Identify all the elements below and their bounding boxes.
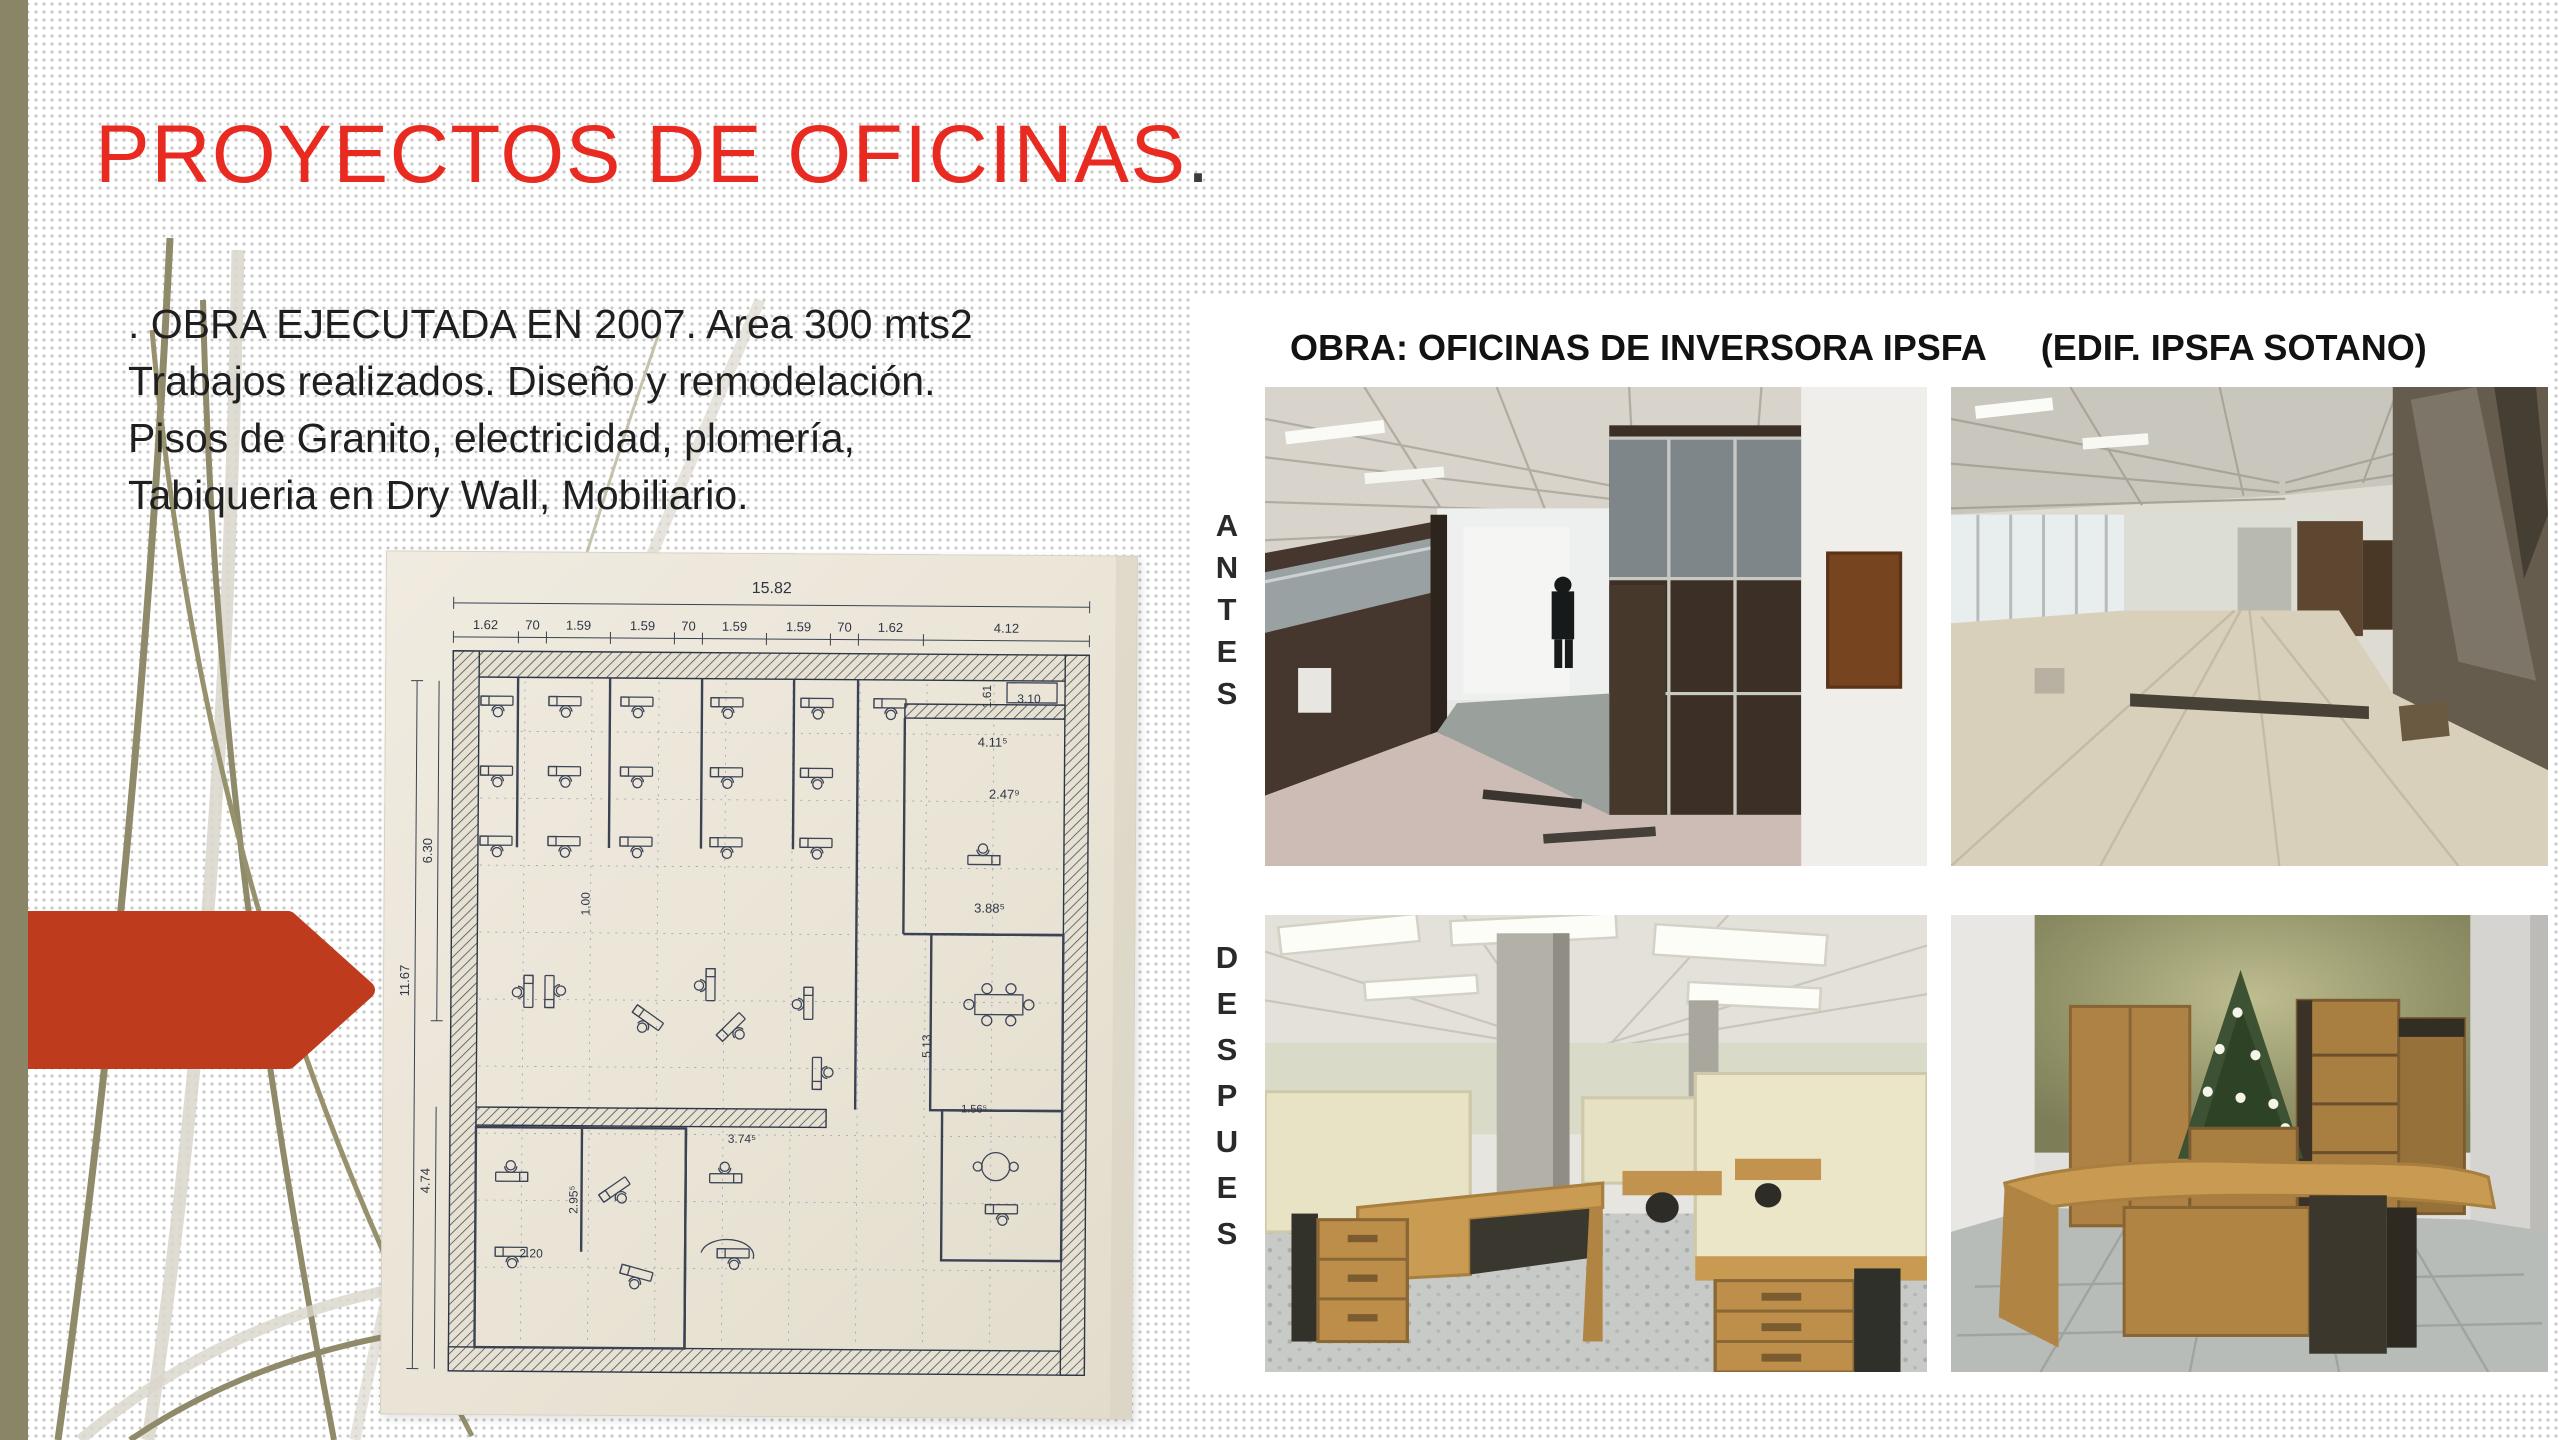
svg-text:4.74: 4.74 (418, 1168, 433, 1193)
project-photos-panel: OBRA: OFICINAS DE INVERSORA IPSFA(EDIF. … (1194, 297, 2550, 1393)
floor-plan-scan: 15.821.62701.591.59701.591.59701.624.126… (380, 550, 1138, 1419)
svg-text:1.59: 1.59 (786, 619, 811, 634)
left-accent-bar (0, 0, 28, 1440)
title-text: PROYECTOS DE OFICINAS (95, 109, 1187, 200)
svg-text:1.59: 1.59 (566, 618, 591, 633)
svg-text:11.67: 11.67 (397, 965, 412, 997)
svg-text:4.11⁵: 4.11⁵ (978, 735, 1008, 750)
paper-edge-shadow (1110, 555, 1138, 1419)
description-line: . OBRA EJECUTADA EN 2007. Area 300 mts2 (128, 296, 973, 353)
svg-text:4.12: 4.12 (994, 621, 1019, 636)
row-label-antes: A N T E S (1198, 505, 1256, 715)
svg-text:3.88⁵: 3.88⁵ (974, 901, 1005, 916)
svg-text:3.74⁵: 3.74⁵ (728, 1132, 756, 1146)
svg-text:3.10: 3.10 (1017, 692, 1041, 706)
svg-text:70: 70 (681, 618, 696, 633)
presentation-slide: PROYECTOS DE OFICINAS. . OBRA EJECUTADA … (0, 0, 2560, 1440)
svg-text:70: 70 (525, 617, 540, 632)
title-period: . (1187, 109, 1211, 200)
description-line: Pisos de Granito, electricidad, plomería… (128, 410, 973, 467)
svg-text:70: 70 (837, 620, 852, 635)
project-description: . OBRA EJECUTADA EN 2007. Area 300 mts2 … (128, 296, 973, 524)
photos-heading: OBRA: OFICINAS DE INVERSORA IPSFA(EDIF. … (1290, 327, 2427, 369)
photo-despues-cubicles (1265, 915, 1927, 1372)
svg-text:1.59: 1.59 (630, 618, 655, 633)
plan-meeting-furniture (701, 681, 1057, 1261)
description-line: Trabajos realizados. Diseño y remodelaci… (128, 353, 973, 410)
plan-walls (448, 651, 1089, 1375)
photos-heading-edif: (EDIF. IPSFA SOTANO) (2041, 327, 2427, 368)
plan-workstations (477, 696, 1021, 1295)
svg-text:1.00: 1.00 (578, 892, 592, 916)
svg-text:1.61: 1.61 (980, 685, 994, 709)
page-title: PROYECTOS DE OFICINAS. (95, 108, 1211, 202)
svg-text:6.30: 6.30 (420, 838, 435, 863)
svg-text:1.62: 1.62 (878, 620, 903, 635)
photos-heading-obra: OBRA: OFICINAS DE INVERSORA IPSFA (1290, 327, 1987, 368)
photo-antes-construction-partitions (1265, 387, 1927, 866)
svg-text:1.56⁵: 1.56⁵ (961, 1103, 987, 1115)
red-arrow-icon (0, 880, 400, 1090)
svg-text:5.13: 5.13 (919, 1034, 933, 1058)
svg-text:2.47⁹: 2.47⁹ (989, 787, 1020, 802)
photo-antes-empty-hall (1951, 387, 2548, 866)
svg-text:1.59: 1.59 (722, 619, 747, 634)
photo-despues-executive-office (1951, 915, 2548, 1372)
svg-text:15.82: 15.82 (752, 580, 792, 597)
floor-plan-drawing: 15.821.62701.591.59701.591.59701.624.126… (380, 550, 1138, 1419)
plan-grid (477, 681, 1062, 1345)
svg-text:1.62: 1.62 (473, 617, 498, 632)
svg-text:2.95⁵: 2.95⁵ (566, 1185, 580, 1213)
description-line: Tabiqueria en Dry Wall, Mobiliario. (128, 467, 973, 524)
svg-text:2.20: 2.20 (519, 1246, 543, 1260)
row-label-despues: D E S P U E S (1198, 935, 1256, 1257)
